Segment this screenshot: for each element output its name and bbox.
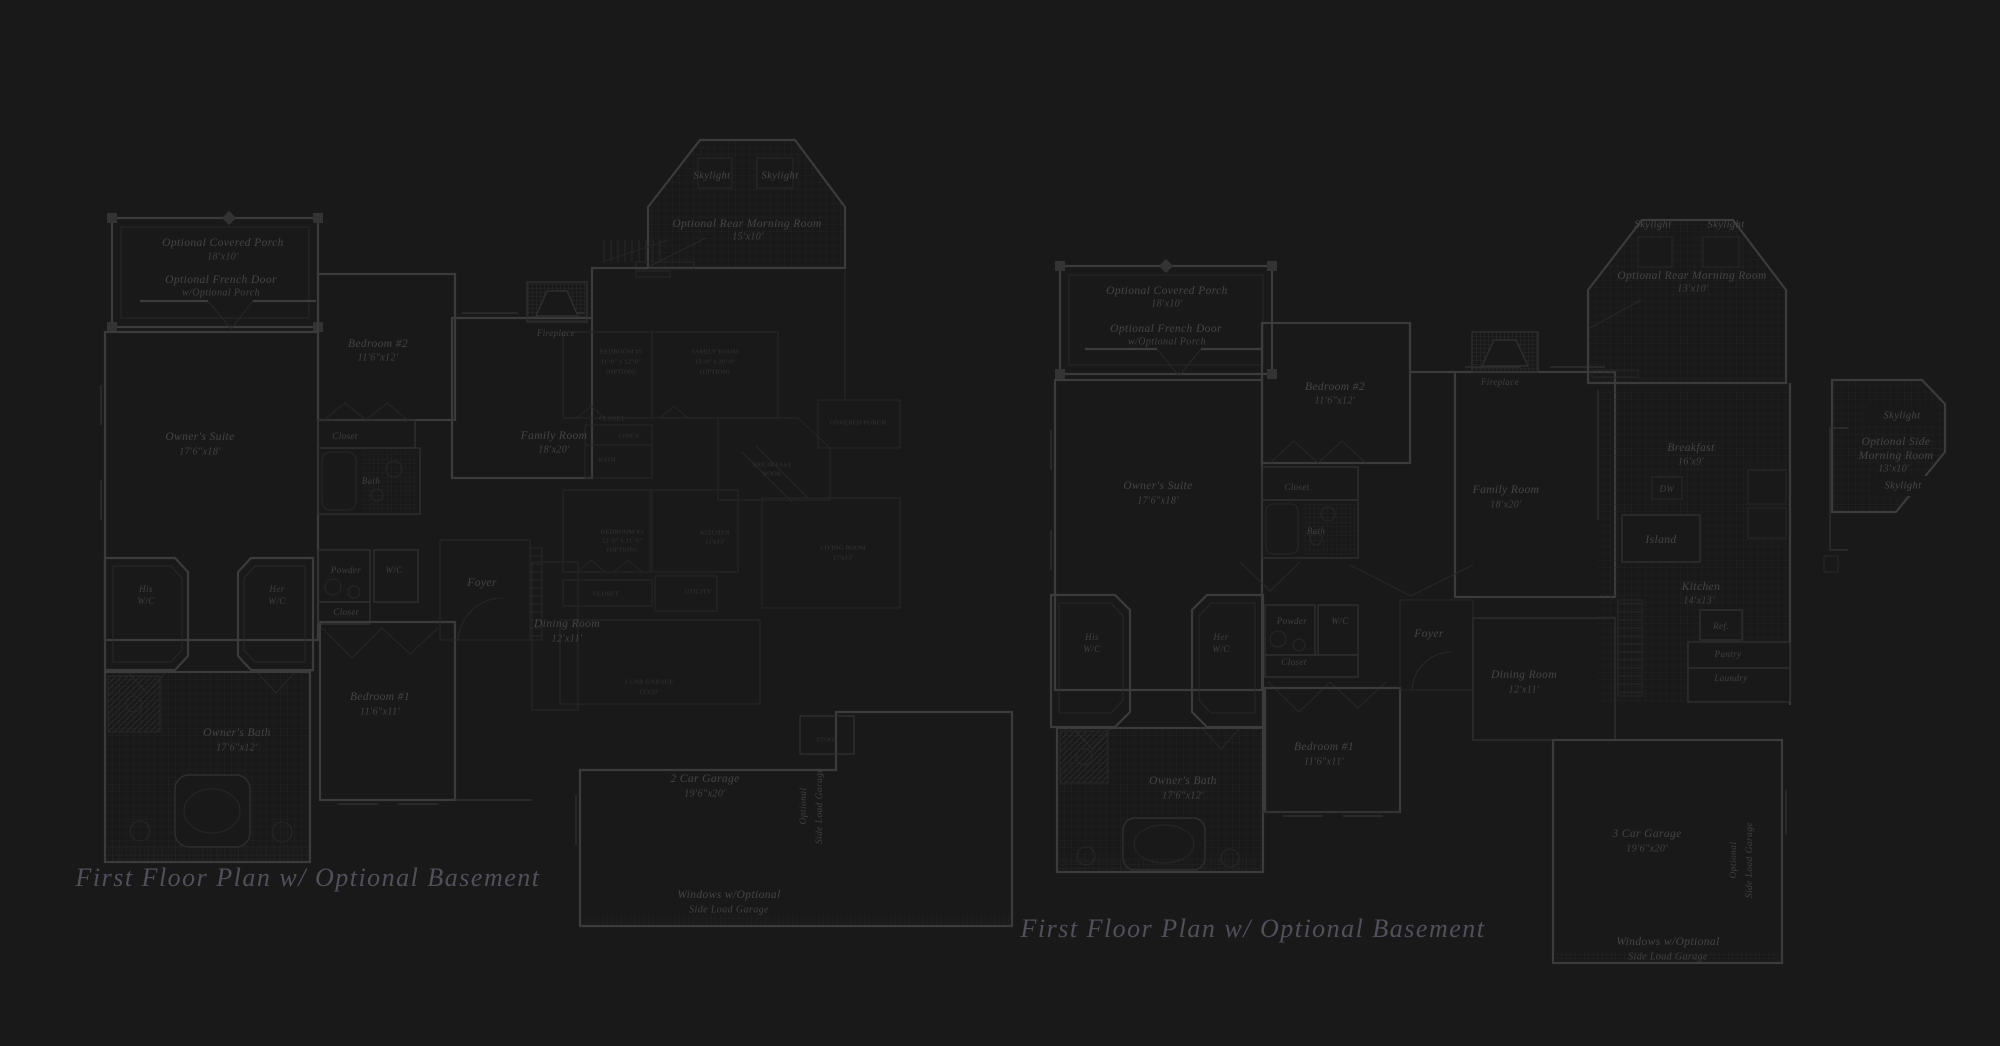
caption-left-plan: First Floor Plan w/ Optional Basement [76, 863, 541, 893]
label-rp-porch-title: Optional Covered Porch [1106, 285, 1228, 297]
label-ov-breakfast: BREAKFAST [752, 462, 791, 469]
label-lp-family-room: Family Room [521, 430, 588, 442]
label-lp-closet-top: Closet [332, 431, 357, 441]
label-rp-family-room: Family Room [1473, 484, 1540, 496]
label-ov-bedroom5: BEDROOM #5 [600, 349, 643, 356]
label-rp-foyer: Foyer [1414, 628, 1443, 640]
label-rp-garage-dims: 19'6"x20' [1626, 844, 1668, 855]
label-lp-bedroom1: Bedroom #1 [350, 691, 410, 703]
label-lp-morning-room: Optional Rear Morning Room [672, 218, 821, 230]
label-rp-closet-mid: Closet [1281, 657, 1306, 667]
label-lp-wc: W/C [385, 565, 402, 575]
label-lp-his-wc: W/C [137, 596, 154, 606]
label-rp-powder: Powder [1277, 616, 1307, 626]
label-rp-pantry: Pantry [1715, 649, 1742, 659]
label-lp-skylight-2: Skylight [761, 171, 798, 182]
label-rp-her-wc: W/C [1212, 644, 1229, 654]
label-rp-side-morning-2: Morning Room [1859, 450, 1934, 462]
label-rp-french-door: Optional French Door [1110, 323, 1222, 335]
label-ov-breakfast-nook: NOOK [762, 471, 782, 478]
label-rp-skylight-2: Skylight [1707, 220, 1744, 231]
label-lp-porch-dims: 18'x10' [207, 252, 239, 263]
label-lp-fireplace: Fireplace [537, 328, 575, 338]
label-lp-owners-bath: Owner's Bath [203, 727, 271, 739]
label-rp-dining: Dining Room [1491, 669, 1557, 681]
label-rp-owners-suite: Owner's Suite [1123, 480, 1192, 492]
label-ov-bath: BATH [598, 457, 616, 464]
label-lp-her-wc: W/C [268, 596, 285, 606]
label-ov-linen: LINEN [619, 433, 640, 440]
label-ov-utility: UTILITY [684, 589, 711, 596]
label-rp-bath: Bath [1307, 526, 1326, 536]
label-ov-garage-dims: 12'x20' [639, 689, 659, 696]
label-rp-dining-dims: 12'x11' [1509, 685, 1540, 696]
label-lp-bath: Bath [362, 476, 381, 486]
label-rp-garage: 3 Car Garage [1612, 828, 1681, 840]
label-rp-wc: W/C [1331, 616, 1348, 626]
label-rp-owners-bath: Owner's Bath [1149, 775, 1217, 787]
label-ov-family-room-option: (OPTION) [700, 369, 730, 376]
caption-right-plan: First Floor Plan w/ Optional Basement [1021, 914, 1486, 944]
label-lp-foyer: Foyer [467, 577, 496, 589]
label-rp-skylight-1: Skylight [1634, 220, 1671, 231]
label-rp-his-wc: W/C [1083, 644, 1100, 654]
label-ov-living-room: LIVING ROOM [820, 545, 866, 552]
label-rp-sideload-1: Optional [1729, 842, 1739, 879]
label-lp-french-door-2: w/Optional Porch [182, 288, 260, 299]
label-rp-fireplace: Fireplace [1481, 377, 1519, 387]
label-ov-family-room: FAMILY ROOM [692, 349, 739, 356]
label-ov-kitchen: KITCHEN [700, 530, 730, 537]
label-ov-closet-b: CLOSET [593, 591, 619, 598]
label-lp-closet-mid: Closet [333, 607, 358, 617]
label-rp-bedroom2: Bedroom #2 [1305, 381, 1365, 393]
label-rp-his: His [1085, 632, 1099, 642]
label-rp-closet-top: Closet [1284, 482, 1309, 492]
label-rp-bedroom1: Bedroom #1 [1294, 741, 1354, 753]
label-ov-bedroom3-dims: 12'-0" x 11'-0" [602, 538, 643, 545]
label-rp-breakfast: Breakfast [1667, 442, 1714, 454]
label-rp-owners-bath-dims: 17'6"x12' [1162, 791, 1204, 802]
label-ov-bedroom3: BEDROOM #3 [601, 529, 644, 536]
label-ov-stoop: STOOP [816, 737, 837, 744]
label-lp-skylight-1: Skylight [693, 171, 730, 182]
label-lp-powder: Powder [331, 565, 361, 575]
label-ov-bedroom5-option: (OPTION) [606, 369, 636, 376]
label-lp-owners-suite: Owner's Suite [165, 431, 234, 443]
label-ov-closet-a: CLOSET [599, 416, 625, 423]
label-lp-dining-dims: 12'x11' [552, 634, 583, 645]
label-rp-laundry: Laundry [1714, 673, 1747, 683]
label-rp-side-skylight-2: Skylight [1884, 481, 1921, 492]
label-ov-family-room-dims: 15'-0" x 20'-0" [695, 359, 736, 366]
label-rp-morning-room: Optional Rear Morning Room [1617, 270, 1766, 282]
label-ov-bedroom3-option: (OPTION) [607, 547, 637, 554]
label-rp-kitchen-dims: 14'x13' [1683, 596, 1715, 607]
label-rp-side-morning-1: Optional Side [1862, 436, 1931, 448]
label-rp-windows-note-2: Side Load Garage [1628, 952, 1708, 963]
label-rp-kitchen: Kitchen [1682, 581, 1721, 593]
label-rp-her: Her [1213, 632, 1228, 642]
label-lp-dining: Dining Room [534, 618, 600, 630]
label-lp-garage: 2 Car Garage [670, 773, 739, 785]
label-lp-morning-room-dims: 15'x10' [732, 232, 764, 243]
label-ov-covered-porch: COVERED PORCH [830, 420, 887, 427]
label-rp-bedroom1-dims: 11'6"x11' [1304, 757, 1344, 768]
label-ov-kitchen-dims: 11'x13' [705, 539, 725, 546]
label-rp-windows-note: Windows w/Optional [1616, 936, 1719, 948]
label-rp-morning-room-dims: 13'x10' [1677, 284, 1709, 295]
label-rp-porch-dims: 18'x10' [1151, 299, 1183, 310]
label-lp-sideload-1: Optional [799, 788, 809, 825]
label-rp-side-morning-dims: 13'x10' [1878, 464, 1910, 475]
label-ov-living-room-dims: 17'x13' [833, 555, 853, 562]
label-rp-family-room-dims: 18'x20' [1490, 500, 1522, 511]
blueprint-background: Optional Covered Porch 18'x10' Optional … [0, 0, 2000, 1046]
label-lp-windows-note: Windows w/Optional [677, 889, 780, 901]
overlay-plan-linework [560, 240, 900, 704]
label-lp-bedroom1-dims: 11'6"x11' [360, 707, 400, 718]
label-lp-porch-title: Optional Covered Porch [162, 237, 284, 249]
label-rp-sideload-2: Side Load Garage [1745, 822, 1755, 898]
label-lp-bedroom2: Bedroom #2 [348, 338, 408, 350]
label-ov-garage: 1 CAR GARAGE [624, 679, 673, 686]
label-lp-owners-bath-dims: 17'6"x12' [216, 743, 258, 754]
label-lp-garage-dims: 19'6"x20' [684, 789, 726, 800]
label-lp-owners-suite-dims: 17'6"x18' [179, 447, 221, 458]
label-lp-her: Her [269, 584, 284, 594]
label-lp-windows-note-2: Side Load Garage [689, 905, 769, 916]
label-rp-bedroom2-dims: 11'6"x12' [1315, 396, 1356, 407]
label-rp-owners-suite-dims: 17'6"x18' [1137, 496, 1179, 507]
label-rp-side-skylight-1: Skylight [1883, 411, 1920, 422]
label-lp-french-door: Optional French Door [165, 274, 277, 286]
label-rp-island: Island [1645, 534, 1676, 546]
label-rp-french-door-2: w/Optional Porch [1128, 337, 1206, 348]
label-lp-his: His [139, 584, 153, 594]
label-lp-family-room-dims: 18'x20' [538, 445, 570, 456]
label-lp-sideload-2: Side Load Garage [815, 768, 825, 844]
label-rp-ref: Ref. [1713, 621, 1729, 631]
label-ov-bedroom5-dims: 11'-0" x 12'-0" [601, 359, 642, 366]
label-lp-bedroom2-dims: 11'6"x12' [358, 353, 399, 364]
label-rp-dw: DW [1660, 484, 1675, 494]
label-rp-breakfast-dims: 16'x9' [1678, 457, 1704, 468]
